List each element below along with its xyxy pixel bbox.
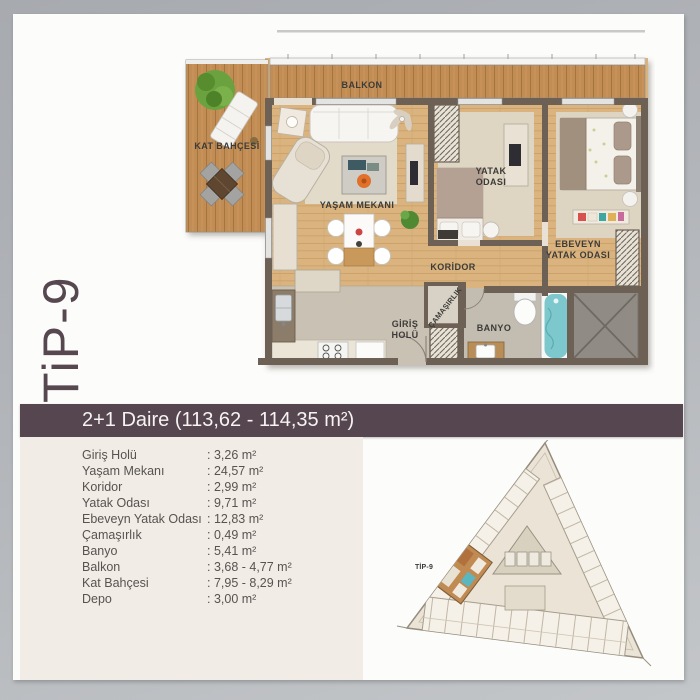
label-balkon: BALKON <box>342 80 383 90</box>
room-area: : 7,95 - 8,29 m² <box>207 575 292 591</box>
room-area-row: Kat Bahçesi: 7,95 - 8,29 m² <box>82 575 363 591</box>
page-title: 2+1 Daire (113,62 - 114,35 m²) <box>82 409 354 431</box>
room-name: Yaşam Mekanı <box>82 463 207 479</box>
room-name: Banyo <box>82 543 207 559</box>
balcony <box>270 54 645 98</box>
room-area: : 9,71 m² <box>207 495 256 511</box>
label-yatak-1: YATAK <box>476 166 507 176</box>
storage-room <box>567 287 643 364</box>
room-area-row: Yatak Odası: 9,71 m² <box>82 495 363 511</box>
room-area-row: Depo: 3,00 m² <box>82 591 363 607</box>
room-area: : 24,57 m² <box>207 463 263 479</box>
room-list: Giriş Holü: 3,26 m² Yaşam Mekanı: 24,57 … <box>20 437 363 607</box>
bookshelf <box>573 210 629 224</box>
room-name: Yatak Odası <box>82 495 207 511</box>
label-ebeveyn-2: YATAK ODASI <box>546 250 610 260</box>
room-area-row: Ebeveyn Yatak Odası: 12,83 m² <box>82 511 363 527</box>
room-area: : 3,68 - 4,77 m² <box>207 559 292 575</box>
room-name: Ebeveyn Yatak Odası <box>82 511 207 527</box>
wardrobe-hatched <box>434 105 459 162</box>
room-area-row: Koridor: 2,99 m² <box>82 479 363 495</box>
room-area: : 12,83 m² <box>207 511 263 527</box>
sheet-page: TiP-9 <box>13 14 684 680</box>
room-list-panel: Giriş Holü: 3,26 m² Yaşam Mekanı: 24,57 … <box>20 437 363 680</box>
room-name: Depo <box>82 591 207 607</box>
room-area-row: Giriş Holü: 3,26 m² <box>82 447 363 463</box>
bathtub <box>541 290 571 362</box>
site-plan: TİP-9 <box>375 440 665 680</box>
room-name: Balkon <box>82 559 207 575</box>
room-area: : 2,99 m² <box>207 479 256 495</box>
coffee-table <box>342 156 386 194</box>
label-kat-bahcesi: KAT BAHÇESİ <box>194 141 259 151</box>
label-koridor: KORİDOR <box>430 262 475 272</box>
master-wardrobe-hatched <box>616 230 639 286</box>
room-area: : 3,00 m² <box>207 591 256 607</box>
site-plan-unit-label: TİP-9 <box>415 563 433 571</box>
room-area-row: Balkon: 3,68 - 4,77 m² <box>82 559 363 575</box>
room-area-row: Yaşam Mekanı: 24,57 m² <box>82 463 363 479</box>
hall-closet-hatched <box>430 324 458 362</box>
tree <box>195 70 235 110</box>
room-area: : 5,41 m² <box>207 543 256 559</box>
dresser-tv <box>504 124 528 186</box>
room-name: Çamaşırlık <box>82 527 207 543</box>
room-area: : 3,26 m² <box>207 447 256 463</box>
title-bar: 2+1 Daire (113,62 - 114,35 m²) <box>20 404 683 437</box>
sideboard <box>273 204 297 270</box>
room-name: Giriş Holü <box>82 447 207 463</box>
sofa <box>310 105 398 142</box>
room-name: Kat Bahçesi <box>82 575 207 591</box>
brochure-sheet: { "page": { "type_label": "TiP-9", "titl… <box>0 0 700 700</box>
balcony-glass-line <box>277 30 645 33</box>
label-banyo: BANYO <box>477 323 512 333</box>
floor-plan: BALKON KAT BAHÇESİ YAŞAM MEKANI YATAK OD… <box>170 18 655 403</box>
label-yatak-2: ODASI <box>476 177 507 187</box>
side-table-lamp <box>277 107 306 136</box>
label-ebeveyn-1: EBEVEYN <box>555 239 601 249</box>
kitchen-peninsula <box>295 270 340 292</box>
room-area-row: Banyo: 5,41 m² <box>82 543 363 559</box>
label-giris-2: HOLÜ <box>391 330 418 340</box>
unit-type-vertical-label: TiP-9 <box>32 245 90 403</box>
room-name: Koridor <box>82 479 207 495</box>
label-yasam-mekani: YAŞAM MEKANI <box>320 200 394 210</box>
room-area-row: Çamaşırlık: 0,49 m² <box>82 527 363 543</box>
room-area: : 0,49 m² <box>207 527 256 543</box>
tv-unit <box>406 144 424 202</box>
label-giris-1: GİRİŞ <box>392 319 419 329</box>
